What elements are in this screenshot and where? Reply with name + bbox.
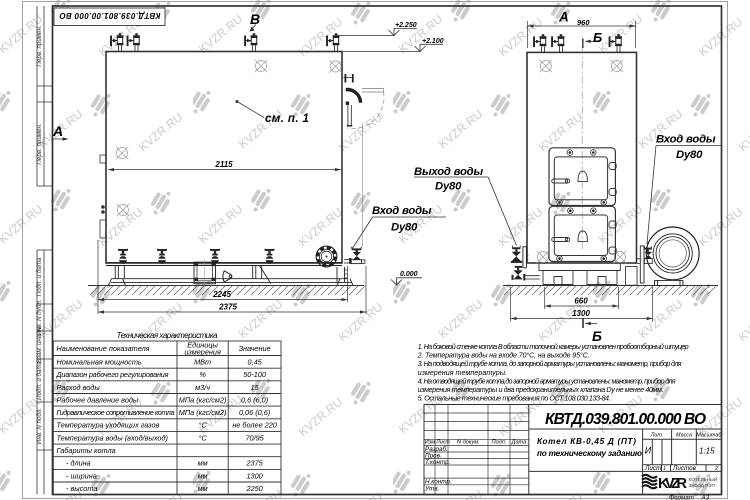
svg-text:- длина: - длина	[66, 459, 91, 468]
svg-text:°С: °С	[198, 433, 207, 442]
svg-text:МПа (кгс/см2): МПа (кгс/см2)	[179, 395, 227, 404]
svg-text:Б: Б	[593, 30, 602, 45]
svg-text:Рабочее давление воды: Рабочее давление воды	[57, 395, 139, 404]
svg-text:15: 15	[251, 383, 260, 392]
svg-text:0,45: 0,45	[247, 358, 262, 367]
svg-text:А: А	[52, 123, 63, 139]
svg-text:не более 220: не более 220	[232, 421, 277, 430]
svg-text:Dy80: Dy80	[676, 149, 703, 161]
svg-text:1: 1	[663, 466, 666, 472]
svg-text:1300: 1300	[572, 309, 590, 318]
svg-text:960: 960	[577, 18, 590, 27]
svg-text:Лист: Лист	[435, 440, 450, 446]
svg-text:Dy80: Dy80	[391, 222, 418, 234]
svg-text:Температура воды (вход/выход): Температура воды (вход/выход)	[57, 433, 168, 442]
svg-text:Т.контр.: Т.контр.	[425, 459, 450, 466]
svg-text:В: В	[250, 11, 260, 27]
svg-text:измерения: измерения	[184, 348, 221, 357]
svg-text:мм: мм	[198, 459, 208, 468]
svg-text:2115: 2115	[214, 160, 233, 169]
svg-text:Подп. и дата: Подп. и дата	[36, 257, 43, 296]
svg-text:+2.250: +2.250	[395, 22, 417, 29]
svg-text:Утв.: Утв.	[424, 486, 439, 493]
svg-text:по техническому заданию: по техническому заданию	[537, 449, 642, 458]
svg-text:КОТЕЛЬНЫЙ: КОТЕЛЬНЫЙ	[689, 475, 718, 482]
svg-text:- ширина: - ширина	[66, 471, 97, 480]
svg-text:N докум.: N докум.	[457, 440, 480, 446]
svg-text:0,6 (6,0): 0,6 (6,0)	[241, 395, 268, 404]
svg-text:2: 2	[714, 466, 718, 472]
svg-text:Техническая характеристика: Техническая характеристика	[117, 331, 219, 340]
svg-text:660: 660	[574, 297, 588, 306]
svg-text:+2.100: +2.100	[422, 38, 444, 45]
svg-text:Номинальная мощность: Номинальная мощность	[57, 358, 142, 367]
svg-text:2375: 2375	[245, 459, 263, 468]
svg-text:Вход воды: Вход воды	[656, 134, 716, 146]
svg-text:КВТД.039.801.00.000 ВО: КВТД.039.801.00.000 ВО	[545, 411, 706, 428]
svg-text:70/95: 70/95	[245, 433, 264, 442]
svg-text:Перв. примен.: Перв. примен.	[36, 25, 43, 66]
svg-text:2250: 2250	[245, 484, 262, 493]
svg-text:Габариты котла: Габариты котла	[57, 446, 116, 455]
svg-text:А3: А3	[701, 495, 710, 500]
svg-text:Вход воды: Вход воды	[372, 205, 432, 217]
svg-text:Инв. N подл.: Инв. N подл.	[36, 408, 43, 444]
svg-text:KVZR: KVZR	[658, 476, 687, 492]
svg-text:Dy80: Dy80	[435, 181, 462, 193]
svg-text:Подп. и дата: Подп. и дата	[36, 361, 43, 400]
svg-text:см. п. 1: см. п. 1	[265, 113, 309, 125]
svg-text:Температура уходящих газов: Температура уходящих газов	[57, 421, 160, 430]
svg-text:1300: 1300	[246, 471, 262, 480]
svg-text:%: %	[199, 370, 206, 379]
svg-text:Наименование показателя: Наименование показателя	[57, 344, 150, 353]
svg-text:Формат: Формат	[669, 495, 694, 500]
svg-text:КВТД.039.801.00.000 ВО: КВТД.039.801.00.000 ВО	[59, 11, 161, 20]
svg-text:м3/ч: м3/ч	[195, 383, 210, 392]
svg-text:Дата: Дата	[511, 440, 527, 446]
svg-text:МВт: МВт	[194, 358, 211, 367]
svg-text:Расход воды: Расход воды	[57, 383, 101, 392]
svg-text:Н.контр.: Н.контр.	[425, 479, 452, 486]
svg-text:2375: 2375	[218, 303, 237, 312]
svg-text:2245: 2245	[212, 290, 231, 299]
svg-text:Подп.: Подп.	[492, 440, 507, 446]
svg-text:И: И	[645, 446, 652, 456]
svg-text:Масштаб: Масштаб	[696, 433, 722, 439]
svg-text:°С: °С	[198, 421, 207, 430]
svg-text:мм: мм	[198, 471, 208, 480]
svg-text:5. Остальные технические треб: 5. Остальные технические требования по О…	[418, 394, 611, 403]
svg-text:Диапазон рабочего регулировани: Диапазон рабочего регулирования	[56, 370, 169, 379]
svg-text:Листов: Листов	[672, 465, 697, 472]
svg-text:Перв. примен.: Перв. примен.	[36, 123, 43, 164]
svg-text:0.000: 0.000	[400, 271, 418, 278]
svg-text:50-100: 50-100	[243, 370, 266, 379]
svg-text:А: А	[558, 10, 569, 25]
svg-text:мм: мм	[198, 484, 208, 493]
svg-text:Взам. инв. N: Взам. инв. N	[36, 326, 43, 363]
svg-text:Выход воды: Выход воды	[414, 166, 483, 178]
svg-text:МПа (кгс/см2): МПа (кгс/см2)	[179, 408, 227, 417]
svg-text:0,06 (0,6): 0,06 (0,6)	[239, 408, 270, 417]
svg-text:1:15: 1:15	[699, 447, 715, 456]
svg-text:ЗАВОД РЭП: ЗАВОД РЭП	[689, 483, 715, 488]
svg-text:Котел КВ-0,45 Д (ПТ): Котел КВ-0,45 Д (ПТ)	[537, 437, 636, 446]
svg-text:Масса: Масса	[676, 433, 692, 439]
svg-text:Лист: Лист	[644, 465, 661, 472]
svg-text:Изм.: Изм.	[425, 440, 437, 446]
svg-text:- высота: - высота	[66, 484, 97, 493]
svg-text:Гидравлическое сопротивление к: Гидравлическое сопротивление котла	[57, 408, 175, 417]
svg-text:Значение: Значение	[239, 344, 271, 353]
svg-text:Лит.: Лит.	[650, 433, 664, 439]
